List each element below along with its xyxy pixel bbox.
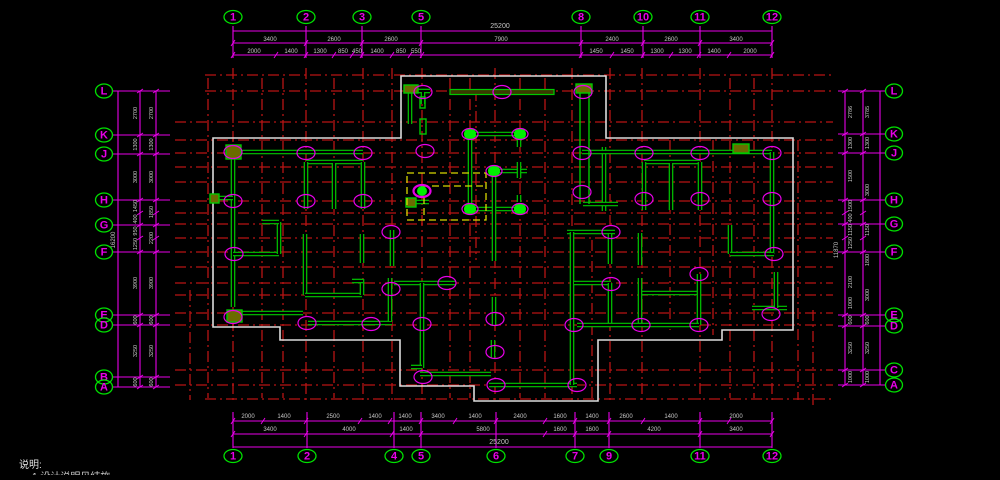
- svg-text:6: 6: [493, 451, 499, 463]
- svg-text:D: D: [890, 321, 898, 333]
- svg-text:600: 600: [149, 377, 155, 386]
- svg-text:D: D: [100, 320, 108, 332]
- svg-text:3900: 3900: [149, 277, 155, 289]
- svg-text:3900: 3900: [133, 277, 139, 289]
- svg-text:1400: 1400: [468, 414, 482, 420]
- svg-text:2500: 2500: [326, 414, 340, 420]
- svg-text:3000: 3000: [149, 171, 155, 183]
- svg-text:1450: 1450: [589, 49, 603, 55]
- svg-text:1: 1: [230, 451, 236, 463]
- svg-text:3000: 3000: [865, 289, 871, 301]
- svg-text:25200: 25200: [489, 439, 509, 446]
- svg-text:7900: 7900: [494, 37, 508, 43]
- svg-text:11870: 11870: [834, 241, 840, 258]
- svg-text:8: 8: [578, 12, 584, 24]
- svg-text:1: 1: [230, 12, 236, 24]
- svg-text:F: F: [891, 247, 898, 259]
- svg-text:600: 600: [133, 315, 139, 324]
- svg-text:1300: 1300: [133, 138, 139, 150]
- svg-text:1400: 1400: [664, 414, 678, 420]
- svg-text:1300: 1300: [650, 49, 664, 55]
- svg-text:5: 5: [418, 12, 424, 24]
- svg-text:550: 550: [411, 49, 422, 55]
- svg-text:3250: 3250: [865, 342, 871, 354]
- svg-text:3250: 3250: [133, 345, 139, 357]
- svg-text:850: 850: [396, 49, 407, 55]
- svg-text:2600: 2600: [384, 37, 398, 43]
- svg-text:1300: 1300: [678, 49, 692, 55]
- svg-text:11: 11: [694, 12, 706, 24]
- svg-text:1300: 1300: [865, 137, 871, 149]
- svg-text:1000: 1000: [848, 297, 854, 309]
- svg-text:2700: 2700: [149, 107, 155, 119]
- svg-text:F: F: [101, 247, 108, 259]
- svg-text:3400: 3400: [729, 427, 743, 433]
- svg-text:K: K: [100, 130, 108, 142]
- svg-text:16200: 16200: [111, 231, 117, 248]
- svg-text:1600: 1600: [553, 414, 567, 420]
- svg-text:2786: 2786: [848, 106, 854, 118]
- svg-text:1500: 1500: [848, 200, 854, 212]
- svg-text:1600: 1600: [553, 427, 567, 433]
- svg-text:3400: 3400: [729, 37, 743, 43]
- svg-text:600: 600: [848, 315, 854, 324]
- svg-text:25200: 25200: [490, 23, 510, 30]
- svg-text:1300: 1300: [313, 49, 327, 55]
- svg-text:2: 2: [303, 12, 309, 24]
- svg-text:G: G: [100, 220, 109, 232]
- svg-text:说明:: 说明:: [19, 458, 42, 471]
- svg-text:1850: 1850: [149, 206, 155, 218]
- svg-text:600: 600: [865, 315, 871, 324]
- svg-text:1400: 1400: [277, 414, 291, 420]
- svg-text:450: 450: [352, 49, 363, 55]
- svg-text:1300: 1300: [149, 138, 155, 150]
- svg-text:2100: 2100: [848, 276, 854, 288]
- svg-text:1400: 1400: [370, 49, 384, 55]
- svg-text:1500: 1500: [848, 170, 854, 182]
- svg-text:1400: 1400: [368, 414, 382, 420]
- svg-text:1000: 1000: [865, 371, 871, 383]
- svg-text:1400: 1400: [398, 414, 412, 420]
- svg-text:400: 400: [848, 213, 854, 222]
- svg-text:600: 600: [149, 315, 155, 324]
- svg-text:G: G: [890, 219, 899, 231]
- svg-text:4000: 4000: [342, 427, 356, 433]
- svg-text:2000: 2000: [743, 49, 757, 55]
- svg-text:4200: 4200: [647, 427, 661, 433]
- svg-text:3000: 3000: [865, 184, 871, 196]
- svg-text:600: 600: [133, 377, 139, 386]
- svg-text:A: A: [100, 382, 108, 394]
- svg-text:3785: 3785: [865, 106, 871, 118]
- svg-text:L: L: [101, 86, 108, 98]
- svg-text:1400: 1400: [399, 427, 413, 433]
- svg-text:1450: 1450: [133, 200, 139, 212]
- svg-text:950: 950: [133, 226, 139, 235]
- svg-text:400: 400: [133, 214, 139, 223]
- svg-text:5800: 5800: [476, 427, 490, 433]
- svg-text:J: J: [101, 149, 107, 161]
- svg-text:2600: 2600: [619, 414, 633, 420]
- svg-text:1250: 1250: [848, 237, 854, 249]
- svg-text:H: H: [100, 195, 108, 207]
- svg-text:850: 850: [338, 49, 349, 55]
- svg-text:1400: 1400: [707, 49, 721, 55]
- svg-text:3250: 3250: [149, 345, 155, 357]
- svg-text:1450: 1450: [620, 49, 634, 55]
- svg-text:2600: 2600: [327, 37, 341, 43]
- svg-text:H: H: [890, 195, 898, 207]
- svg-text:10: 10: [637, 12, 649, 24]
- svg-text:2600: 2600: [664, 37, 678, 43]
- svg-text:2000: 2000: [247, 49, 261, 55]
- svg-text:1150: 1150: [848, 224, 854, 236]
- svg-text:1250: 1250: [133, 238, 139, 250]
- svg-text:3000: 3000: [133, 171, 139, 183]
- svg-text:2000: 2000: [729, 414, 743, 420]
- svg-text:1400: 1400: [284, 49, 298, 55]
- svg-text:2700: 2700: [133, 107, 139, 119]
- svg-text:3250: 3250: [848, 342, 854, 354]
- svg-text:1400: 1400: [585, 414, 599, 420]
- svg-text:2000: 2000: [241, 414, 255, 420]
- svg-text:3400: 3400: [263, 427, 277, 433]
- svg-text:3: 3: [359, 12, 365, 24]
- svg-text:1600: 1600: [585, 427, 599, 433]
- svg-text:J: J: [891, 148, 897, 160]
- svg-text:12: 12: [766, 451, 778, 463]
- svg-text:K: K: [890, 129, 898, 141]
- svg-text:1800: 1800: [865, 254, 871, 266]
- svg-text:1150: 1150: [865, 224, 871, 236]
- svg-text:L: L: [891, 86, 898, 98]
- svg-text:1000: 1000: [848, 371, 854, 383]
- svg-text:1300: 1300: [848, 137, 854, 149]
- svg-text:7: 7: [572, 451, 578, 463]
- svg-text:12: 12: [766, 12, 778, 24]
- svg-text:C: C: [890, 365, 898, 377]
- svg-text:2400: 2400: [605, 37, 619, 43]
- svg-text:2400: 2400: [513, 414, 527, 420]
- svg-text:4: 4: [391, 451, 398, 463]
- svg-text:9: 9: [606, 451, 612, 463]
- svg-text:3400: 3400: [431, 414, 445, 420]
- svg-text:3400: 3400: [263, 37, 277, 43]
- svg-text:2200: 2200: [149, 232, 155, 244]
- svg-text:2: 2: [304, 451, 310, 463]
- svg-text:5: 5: [418, 451, 424, 463]
- svg-text:11: 11: [694, 451, 706, 463]
- svg-text:A: A: [890, 380, 898, 392]
